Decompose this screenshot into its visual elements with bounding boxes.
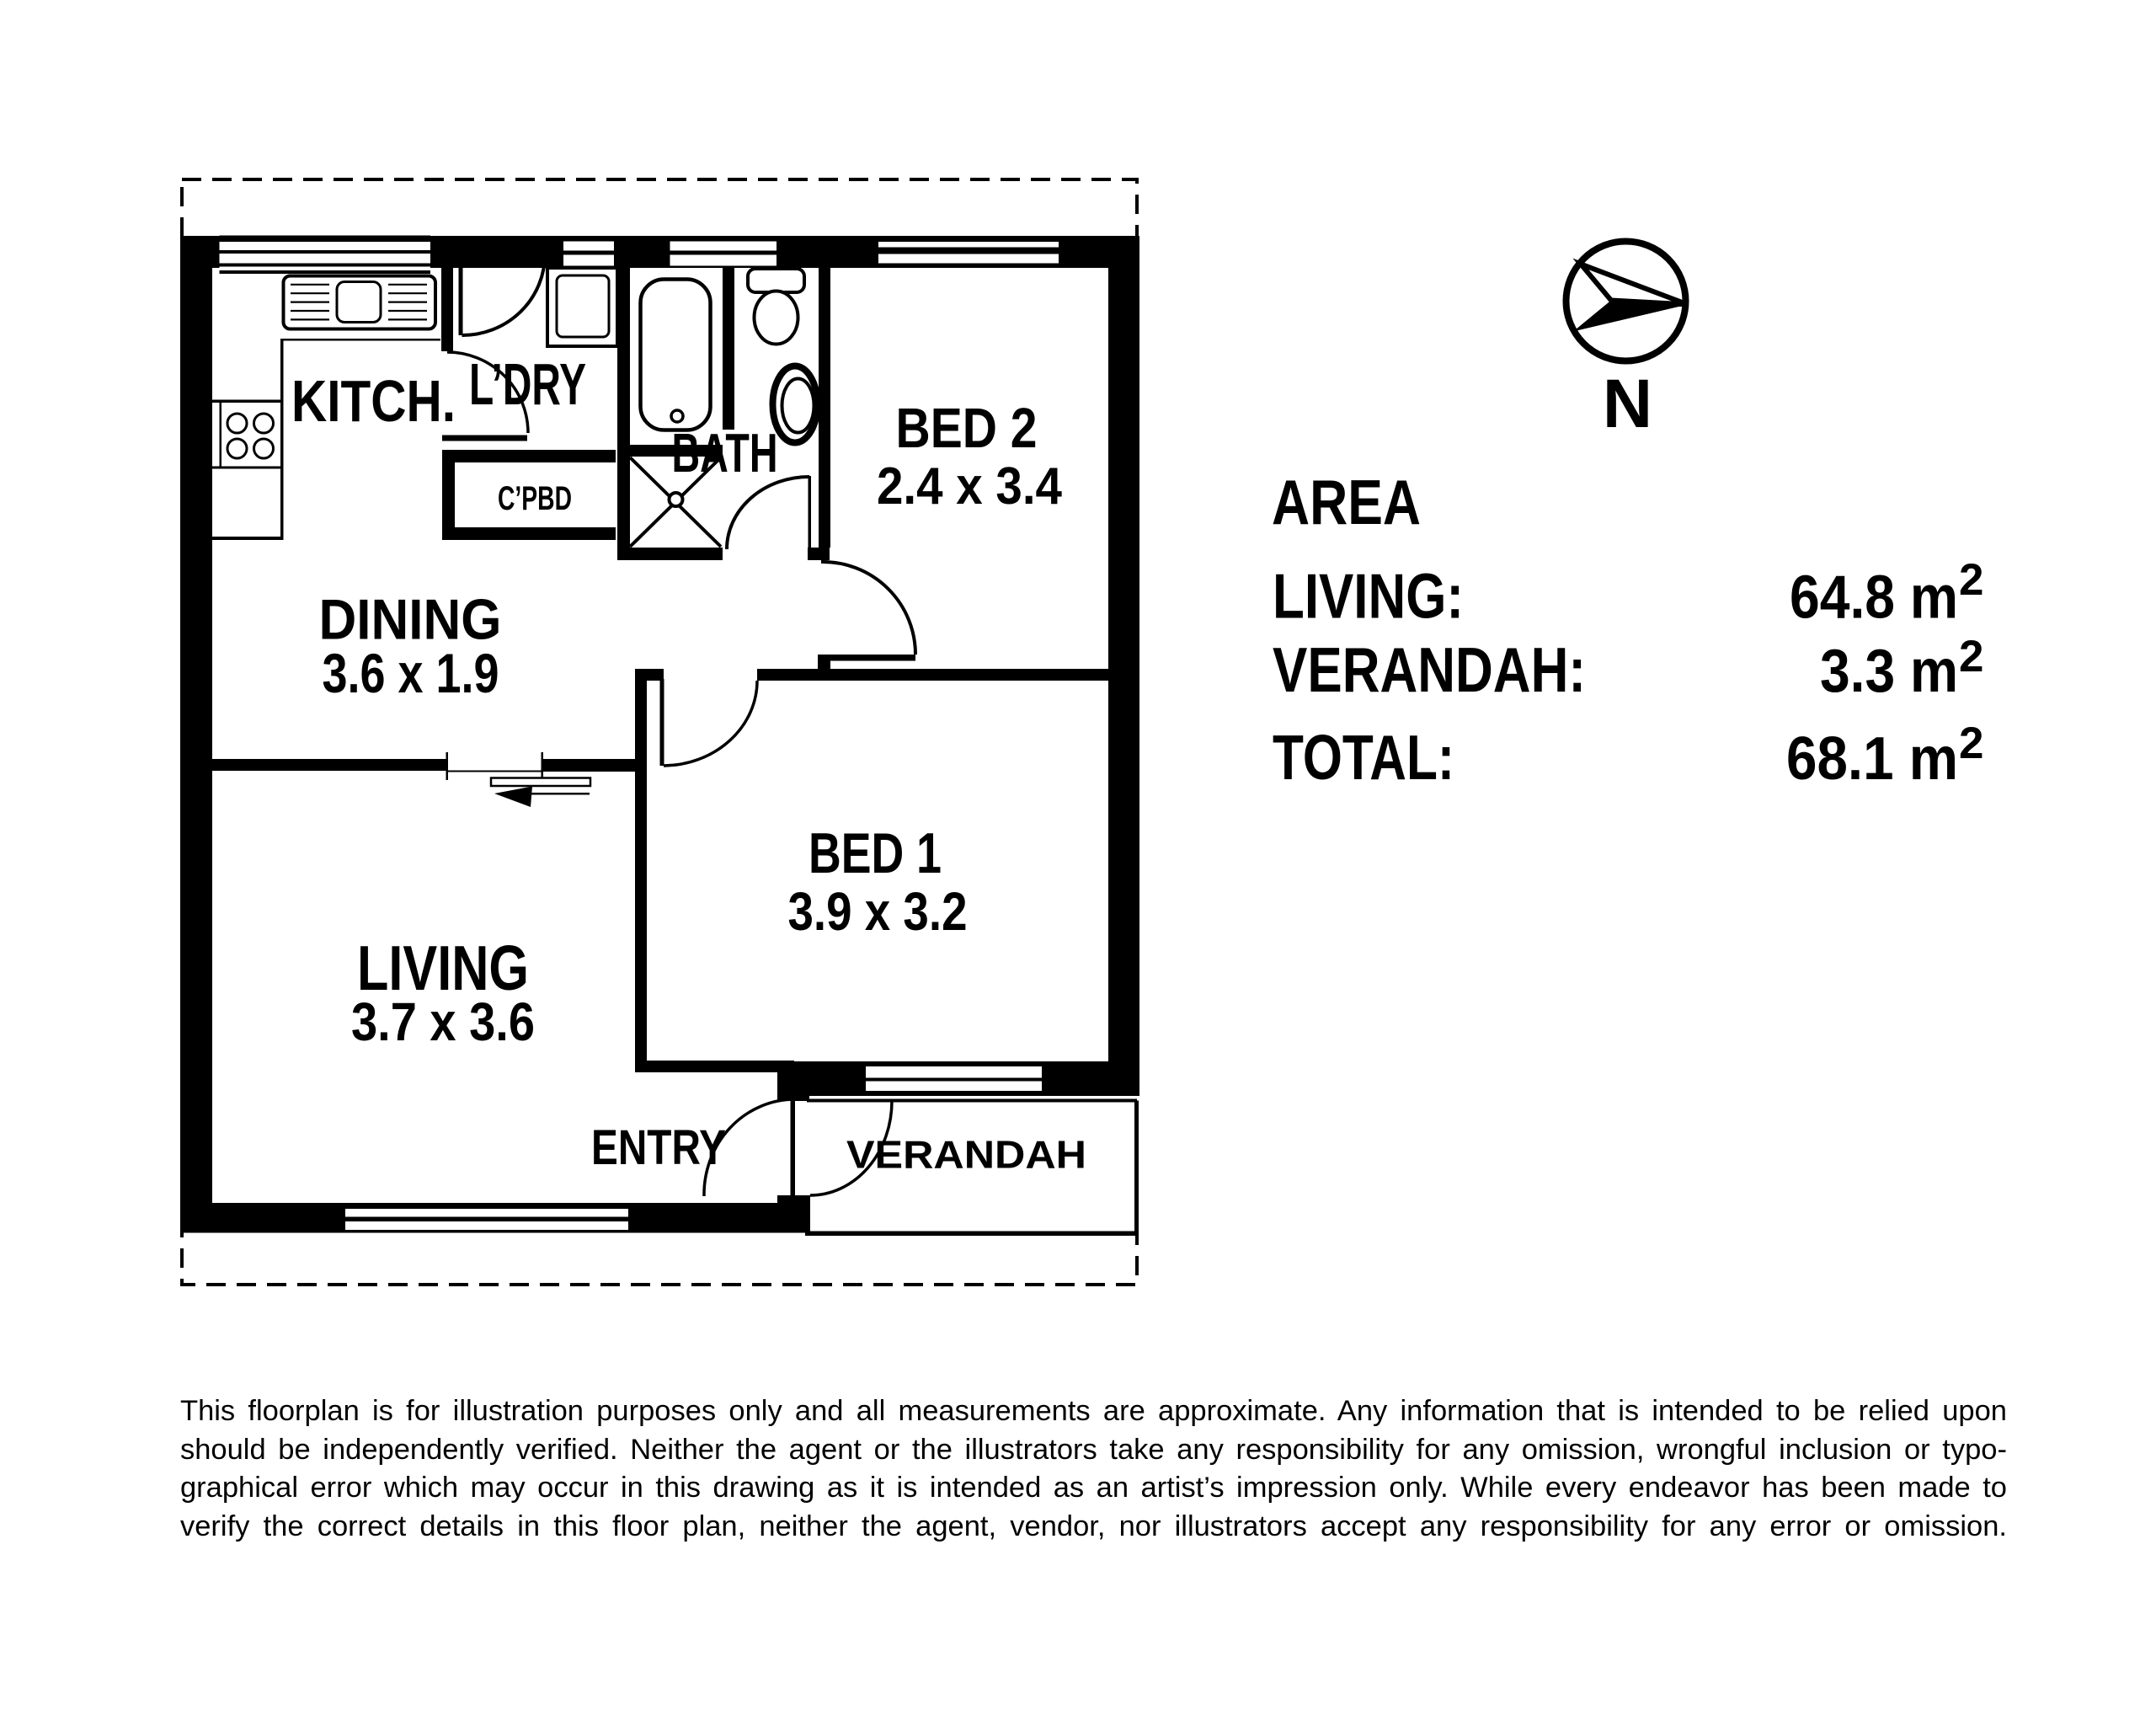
svg-text:AREA: AREA [1272,467,1421,537]
svg-text:2: 2 [1959,632,1983,681]
svg-text:68.1 m: 68.1 m [1786,725,1958,793]
svg-text:L’DRY: L’DRY [469,351,586,417]
svg-text:VERANDAH:: VERANDAH: [1273,634,1586,705]
svg-text:3.6 x 1.9: 3.6 x 1.9 [323,642,499,704]
svg-text:BATH: BATH [672,422,778,484]
svg-text:64.8 m: 64.8 m [1790,564,1958,632]
svg-text:LIVING:: LIVING: [1273,561,1464,632]
svg-text:VERANDAH: VERANDAH [846,1133,1086,1177]
svg-text:2: 2 [1959,719,1983,768]
svg-text:N: N [1603,366,1652,442]
svg-text:3.7 x 3.6: 3.7 x 3.6 [351,991,535,1052]
svg-text:BED 2: BED 2 [896,397,1038,460]
svg-text:2: 2 [1959,555,1983,605]
svg-text:BED 1: BED 1 [808,821,942,885]
svg-text:C’PBD: C’PBD [498,480,572,517]
svg-text:3.9 x 3.2: 3.9 x 3.2 [788,881,968,942]
svg-text:2.4 x 3.4: 2.4 x 3.4 [877,457,1062,516]
svg-text:KITCH.: KITCH. [291,368,456,434]
svg-text:TOTAL:: TOTAL: [1273,722,1454,793]
svg-text:3.3 m: 3.3 m [1820,638,1958,705]
svg-text:ENTRY: ENTRY [591,1120,726,1175]
